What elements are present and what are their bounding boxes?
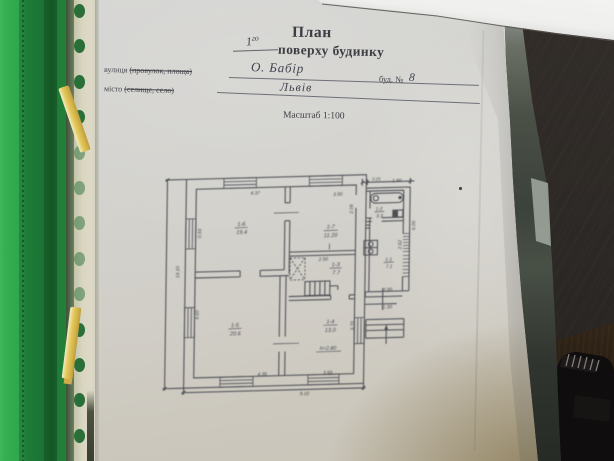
svg-text:7.7: 7.7 <box>332 270 341 276</box>
svg-text:4.60: 4.60 <box>195 310 201 320</box>
svg-text:6.00: 6.00 <box>411 220 417 230</box>
svg-text:2.50: 2.50 <box>318 257 329 263</box>
svg-text:4.35: 4.35 <box>258 372 268 378</box>
svg-text:1-7: 1-7 <box>327 224 336 230</box>
svg-text:7.1: 7.1 <box>386 264 393 270</box>
svg-text:19.4: 19.4 <box>236 230 247 236</box>
svg-text:14.10: 14.10 <box>175 266 181 278</box>
svg-text:9.10: 9.10 <box>300 391 310 397</box>
svg-text:2.09: 2.09 <box>349 204 355 215</box>
svg-text:3.50: 3.50 <box>333 192 343 198</box>
svg-text:3.3: 3.3 <box>376 213 383 219</box>
svg-text:3.58: 3.58 <box>323 370 333 376</box>
svg-text:1-5: 1-5 <box>231 323 240 329</box>
svg-text:2.62: 2.62 <box>397 240 403 251</box>
svg-text:2.00: 2.00 <box>382 287 393 293</box>
svg-text:1-3: 1-3 <box>332 262 341 268</box>
svg-text:11.20: 11.20 <box>324 233 339 239</box>
svg-text:0.25: 0.25 <box>372 176 381 181</box>
svg-text:1.30: 1.30 <box>383 304 393 310</box>
svg-text:1-6: 1-6 <box>237 222 246 228</box>
svg-text:4.37: 4.37 <box>250 191 260 197</box>
svg-text:13.0: 13.0 <box>325 328 337 334</box>
svg-text:1.90: 1.90 <box>392 178 402 184</box>
svg-text:20.6: 20.6 <box>229 331 242 337</box>
svg-text:3.70: 3.70 <box>350 321 356 331</box>
svg-text:0.93: 0.93 <box>197 228 203 238</box>
svg-text:1-4: 1-4 <box>326 319 334 325</box>
